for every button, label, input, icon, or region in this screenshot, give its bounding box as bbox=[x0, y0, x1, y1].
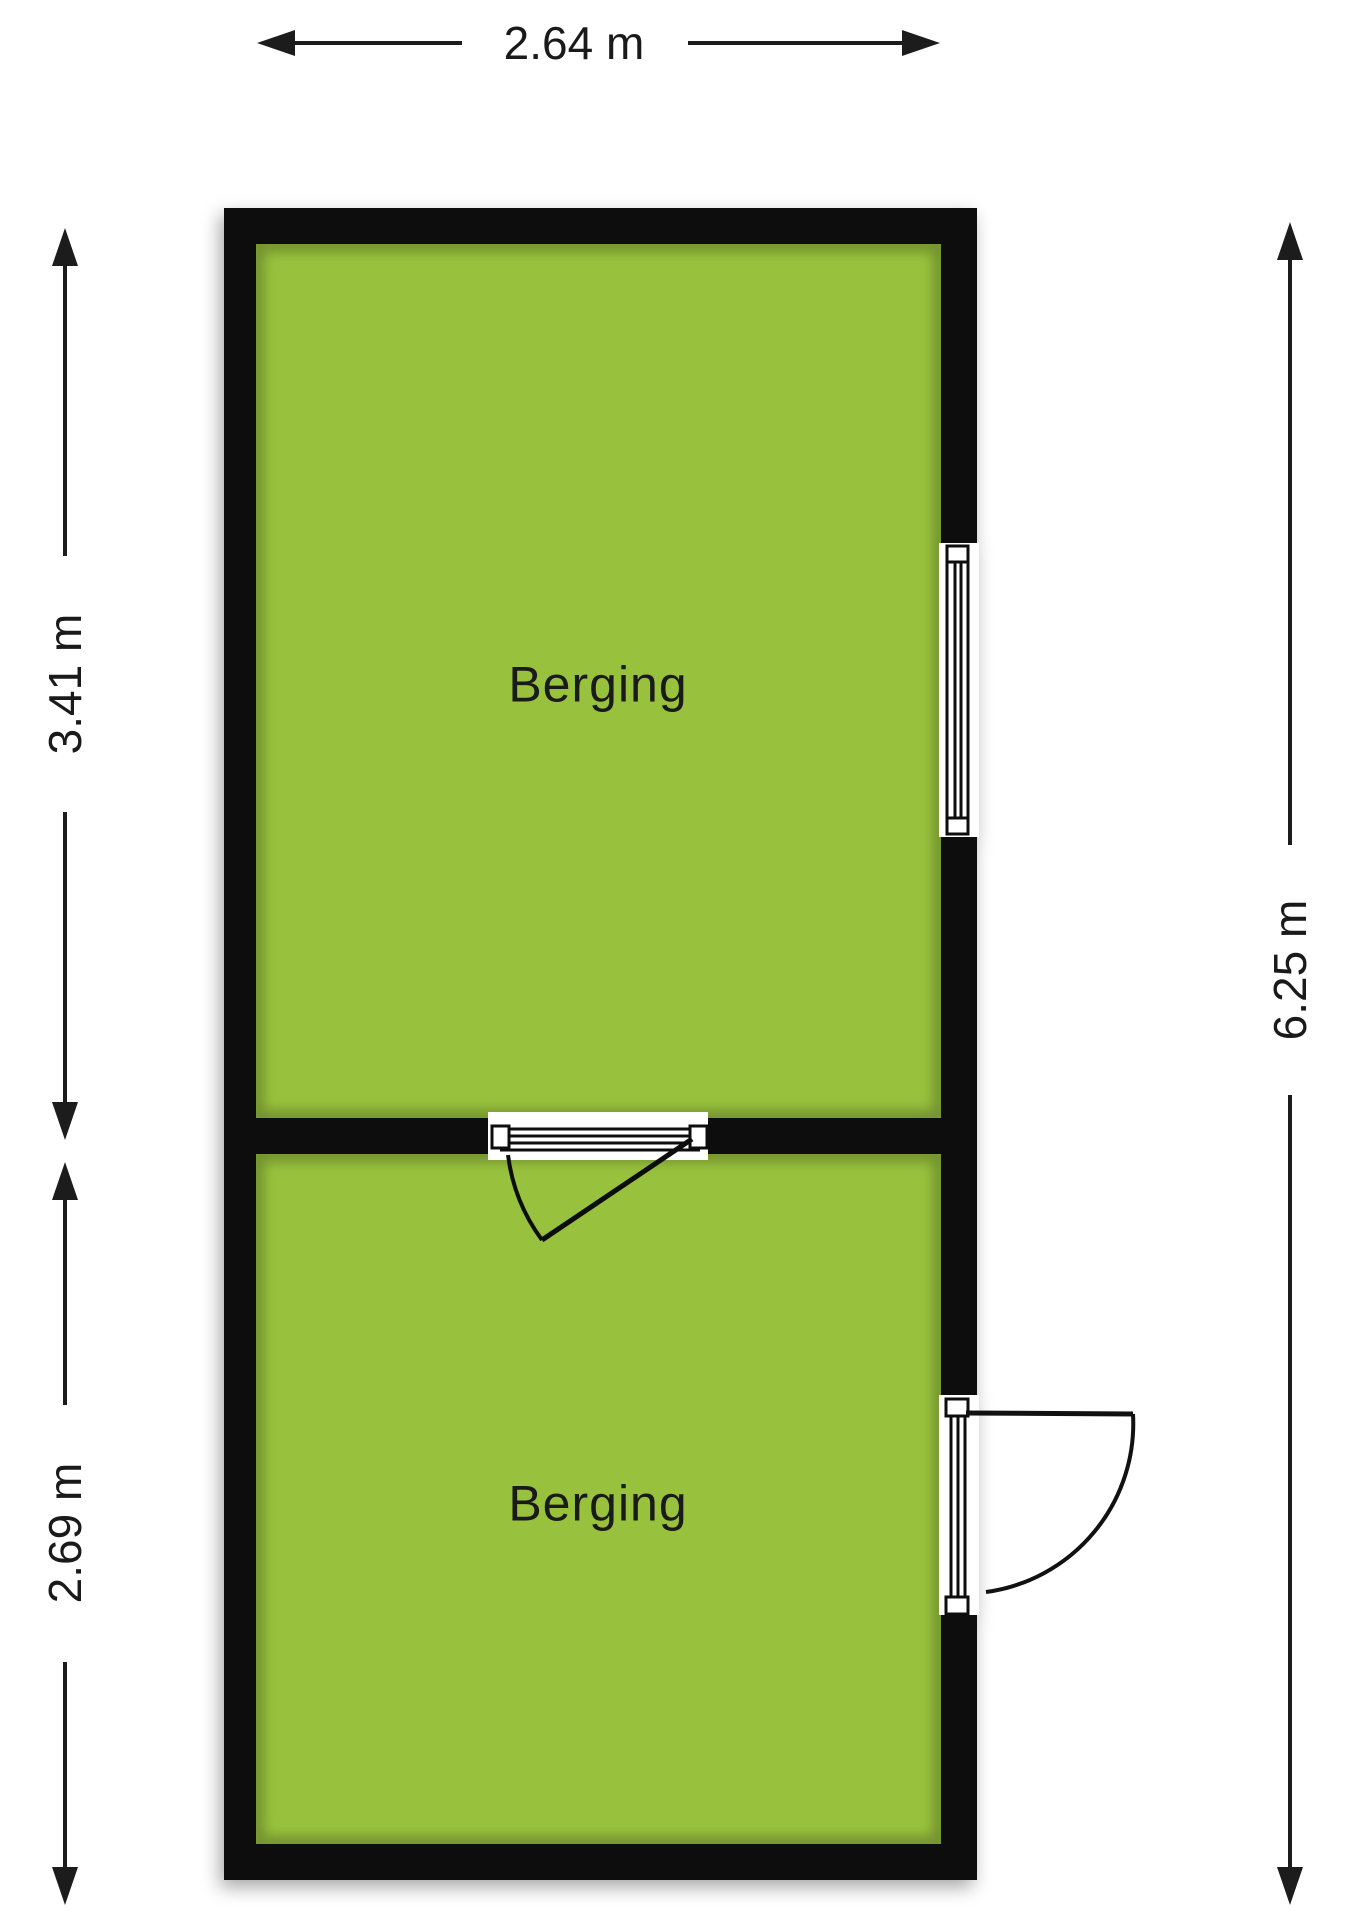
room-label-berging-2: Berging bbox=[508, 1476, 687, 1532]
arrowhead-left bbox=[257, 30, 295, 56]
door-leaf bbox=[966, 1413, 1133, 1414]
dimension-right-total bbox=[1277, 222, 1303, 1905]
arrowhead-down bbox=[52, 1102, 78, 1140]
door-swing-arc bbox=[986, 1414, 1133, 1592]
arrowhead-up bbox=[52, 1162, 78, 1200]
room-label-berging-1: Berging bbox=[508, 657, 687, 713]
dimension-top-width-label: 2.64 m bbox=[504, 17, 645, 69]
arrowhead-up bbox=[1277, 222, 1303, 260]
arrowhead-down bbox=[1277, 1867, 1303, 1905]
exterior-door-symbol bbox=[939, 1395, 979, 1615]
arrowhead-down bbox=[52, 1867, 78, 1905]
window-symbol bbox=[939, 543, 979, 837]
dimension-left-room2-label: 2.69 m bbox=[39, 1463, 91, 1604]
dimension-right-total-label: 6.25 m bbox=[1264, 900, 1316, 1041]
exterior-door-swing bbox=[966, 1413, 1133, 1592]
dimension-left-room1-label: 3.41 m bbox=[39, 614, 91, 755]
floor-plan: Berging Berging 2.64 m 3.41 m 2.69 m 6.2… bbox=[0, 0, 1358, 1920]
arrowhead-up bbox=[52, 228, 78, 266]
arrowhead-right bbox=[902, 30, 940, 56]
building bbox=[224, 208, 979, 1880]
